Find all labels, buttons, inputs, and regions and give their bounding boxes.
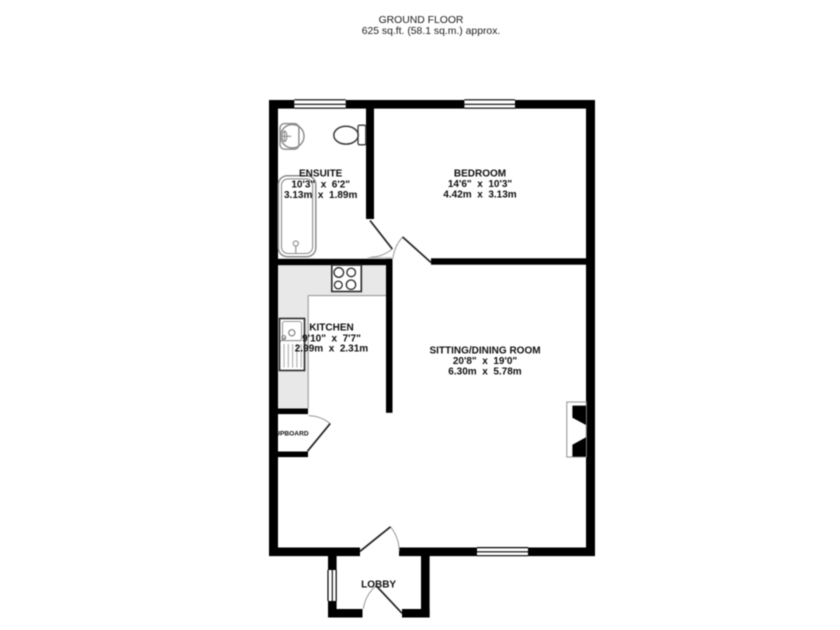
svg-text:SITTING/DINING ROOM: SITTING/DINING ROOM	[429, 345, 540, 356]
svg-text:KITCHEN: KITCHEN	[309, 323, 353, 334]
svg-text:3.13m x 1.89m: 3.13m x 1.89m	[284, 190, 357, 201]
svg-text:GROUND FLOOR: GROUND FLOOR	[379, 15, 464, 26]
svg-text:625 sq.ft. (58.1 sq.m.) approx: 625 sq.ft. (58.1 sq.m.) approx.	[362, 26, 501, 37]
svg-text:6.30m x 5.78m: 6.30m x 5.78m	[448, 366, 521, 377]
svg-text:LOBBY: LOBBY	[361, 580, 396, 591]
svg-text:10'3" x 6'2": 10'3" x 6'2"	[291, 179, 350, 190]
svg-text:4.42m x 3.13m: 4.42m x 3.13m	[443, 190, 516, 201]
svg-text:BEDROOM: BEDROOM	[454, 169, 506, 180]
svg-text:ENSUITE: ENSUITE	[299, 169, 343, 180]
svg-text:14'6" x 10'3": 14'6" x 10'3"	[448, 179, 513, 190]
svg-text:20'8" x 19'0": 20'8" x 19'0"	[453, 356, 518, 367]
svg-text:2.99m x 2.31m: 2.99m x 2.31m	[295, 344, 368, 355]
